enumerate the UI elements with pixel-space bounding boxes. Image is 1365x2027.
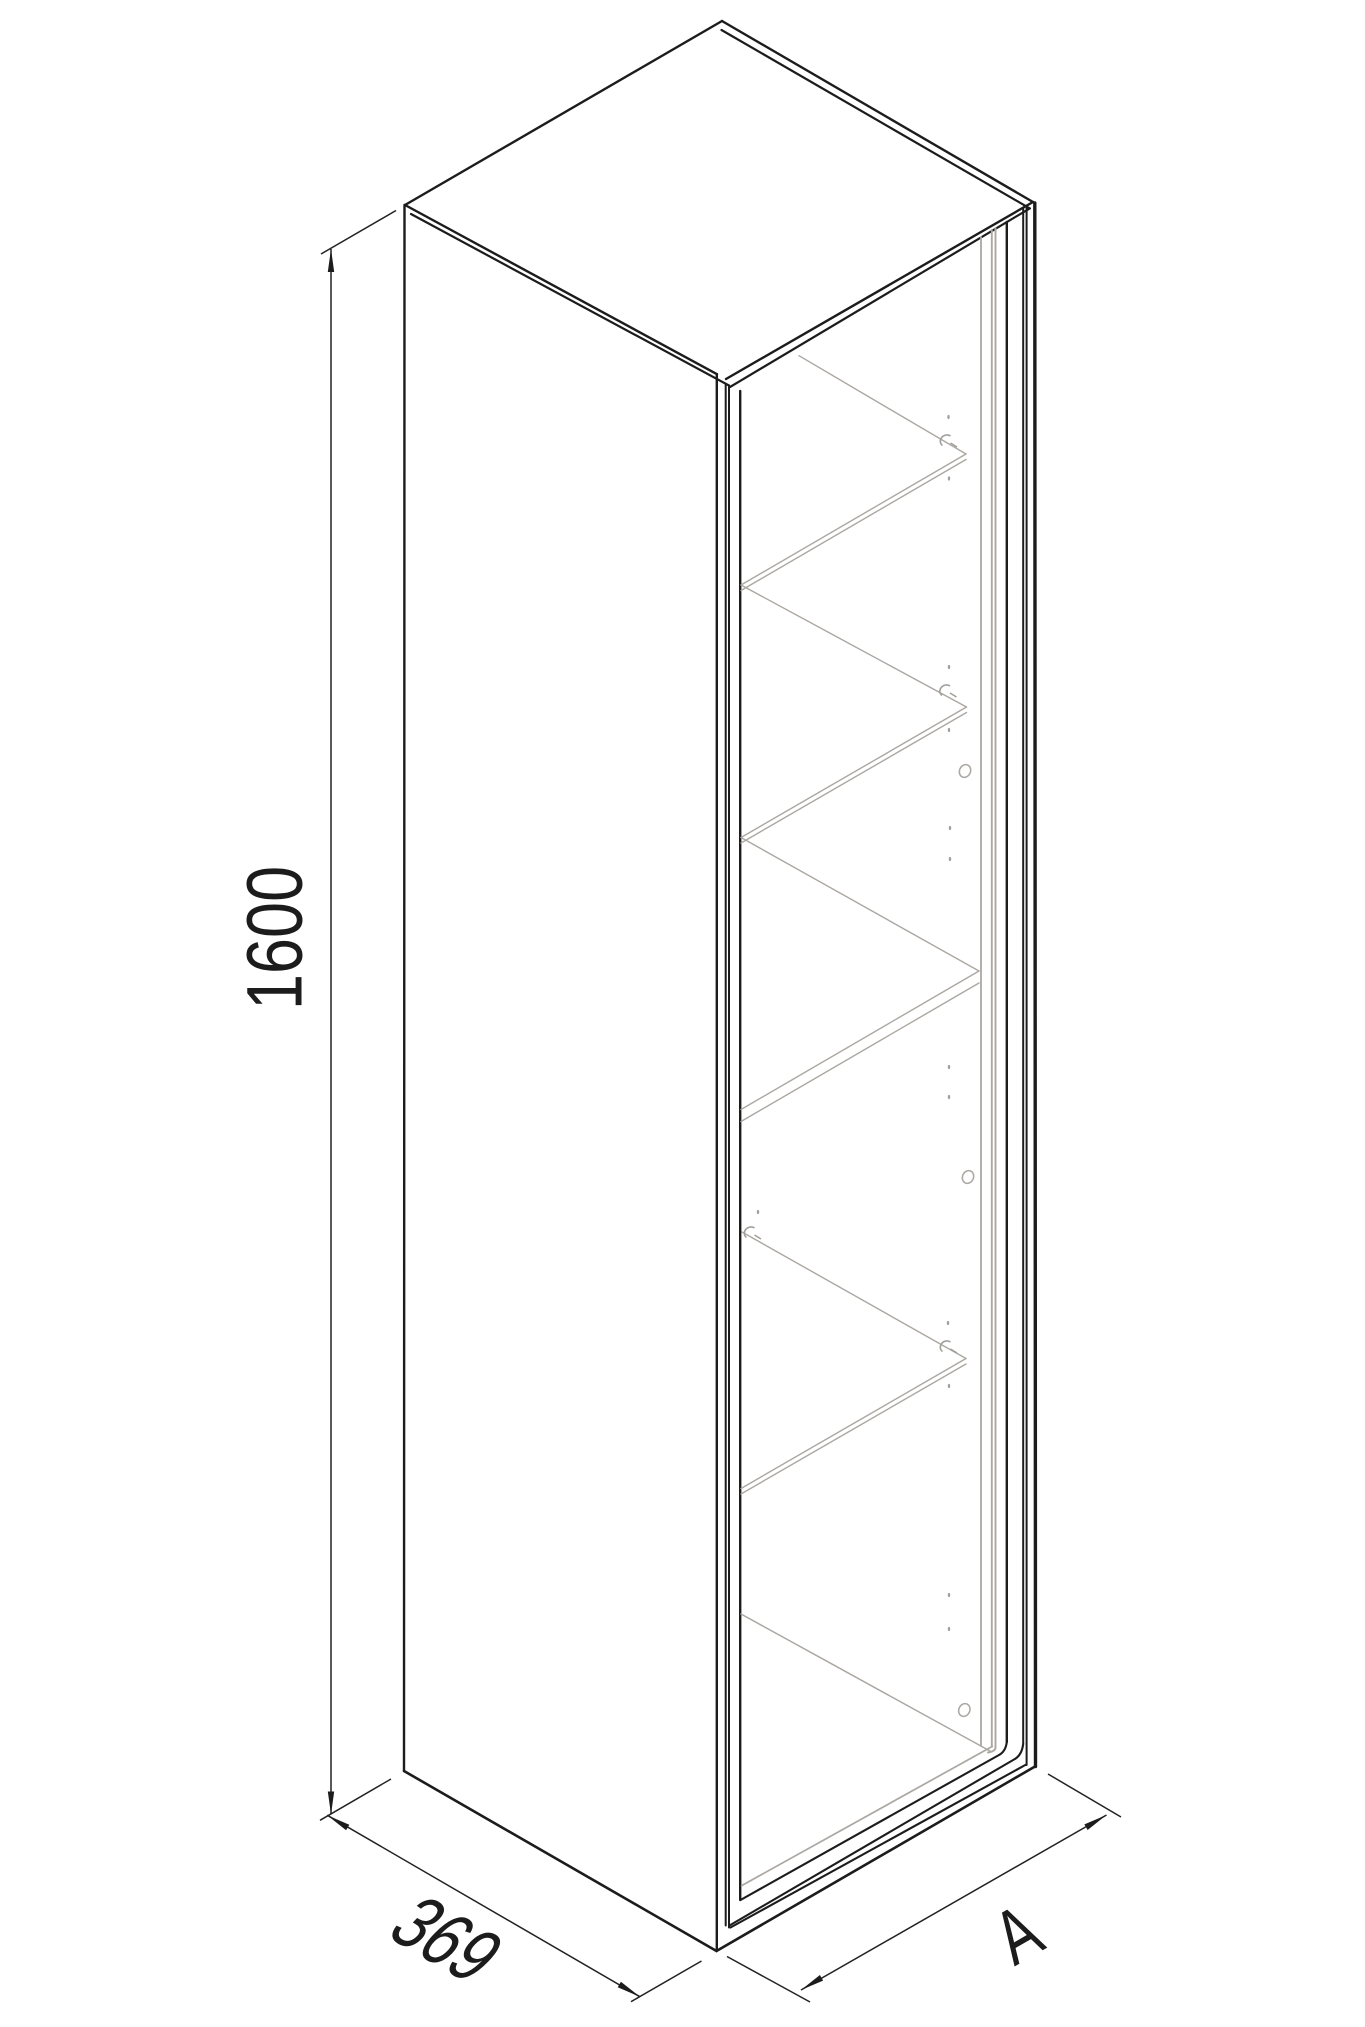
svg-text:A: A [980,1888,1056,1981]
svg-text:1600: 1600 [232,866,319,1010]
svg-text:369: 369 [372,1882,521,1997]
